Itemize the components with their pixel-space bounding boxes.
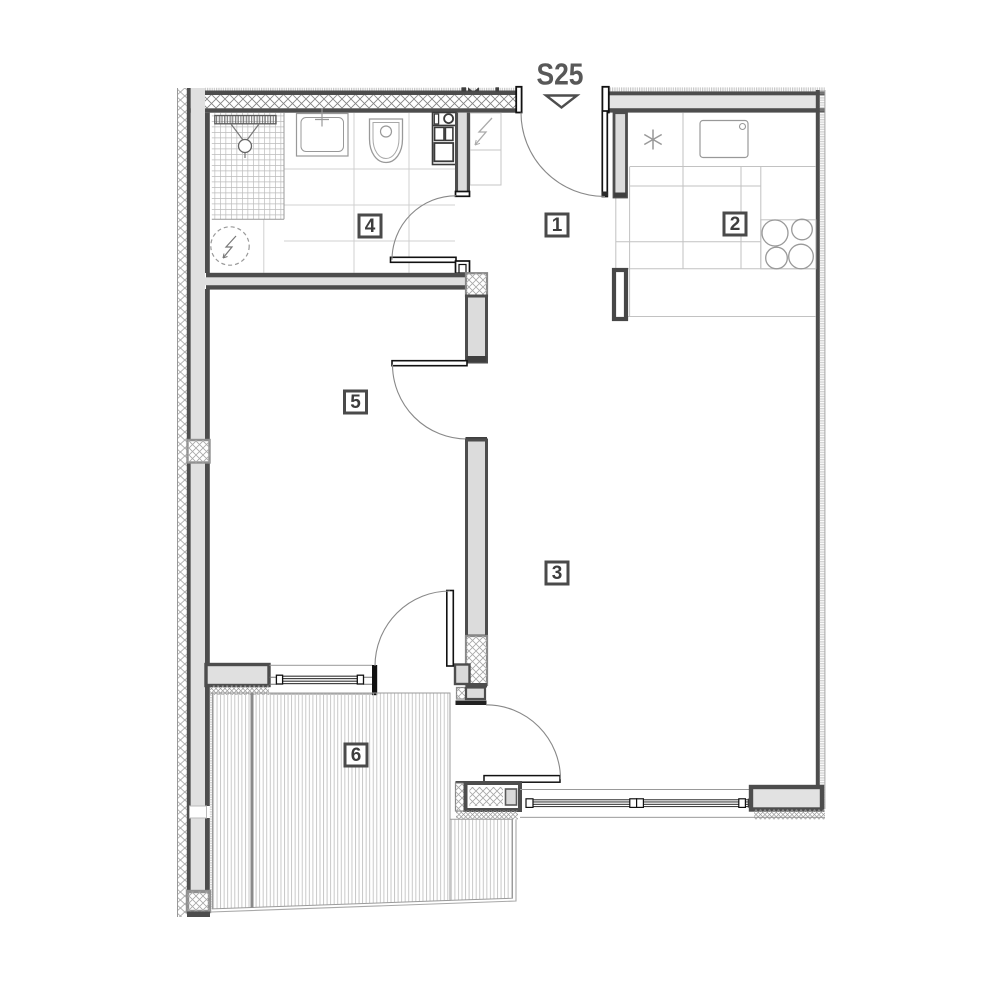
svg-text:3: 3 xyxy=(552,563,563,584)
svg-text:4: 4 xyxy=(365,216,376,237)
svg-text:2: 2 xyxy=(730,214,741,235)
svg-text:5: 5 xyxy=(350,392,361,413)
svg-text:S25: S25 xyxy=(537,57,584,92)
svg-text:6: 6 xyxy=(351,745,362,766)
svg-text:1: 1 xyxy=(552,215,563,236)
